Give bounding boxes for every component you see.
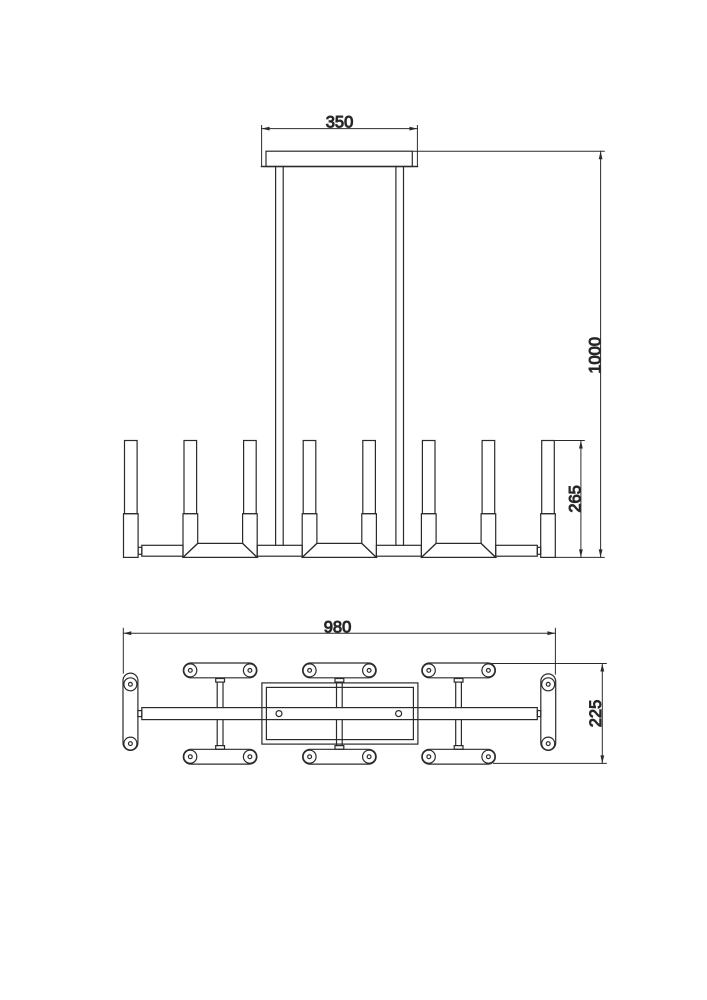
svg-text:350: 350 (326, 114, 354, 132)
svg-text:225: 225 (587, 700, 605, 728)
svg-text:980: 980 (324, 618, 352, 636)
svg-text:265: 265 (567, 485, 585, 513)
svg-text:1000: 1000 (586, 337, 604, 374)
